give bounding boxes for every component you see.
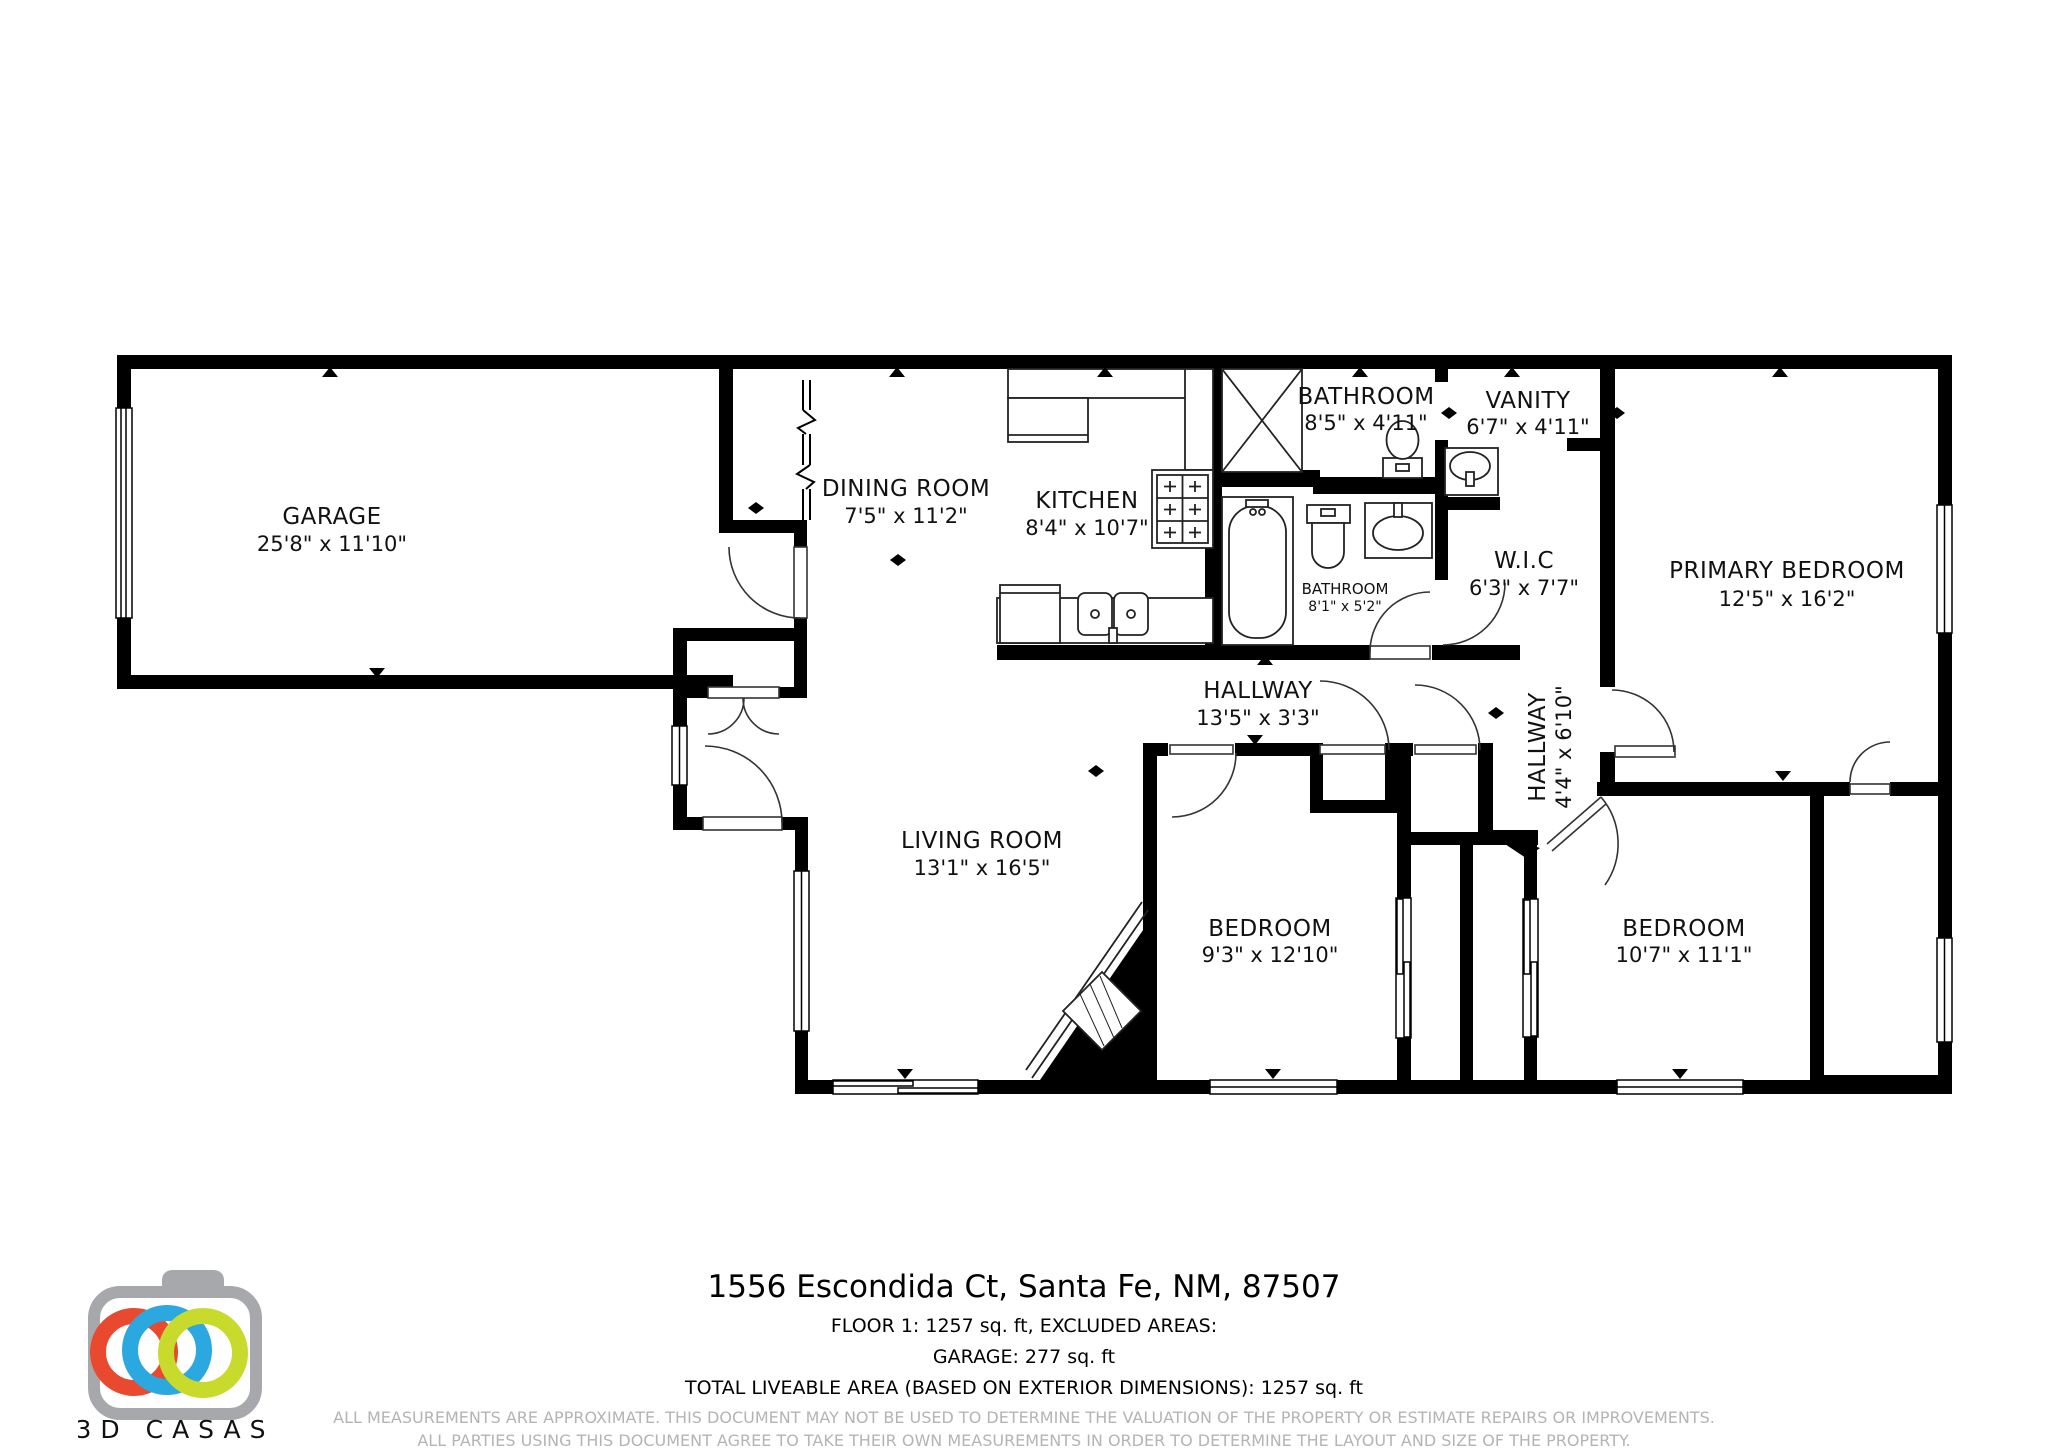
svg-text:6'3" x 7'7": 6'3" x 7'7" <box>1469 576 1579 600</box>
garage-entry-door <box>729 547 807 618</box>
label-wic: W.I.C 6'3" x 7'7" <box>1469 548 1579 600</box>
bath2-sink-symbol <box>1365 503 1432 558</box>
svg-text:HALLWAY: HALLWAY <box>1203 678 1313 704</box>
svg-text:8'1" x 5'2": 8'1" x 5'2" <box>1308 599 1381 615</box>
svg-text:DINING ROOM: DINING ROOM <box>822 476 990 502</box>
svg-text:4'4" x 6'10": 4'4" x 6'10" <box>1552 685 1576 808</box>
floorplan-drawing: GARAGE 25'8" x 11'10" DINING ROOM 7'5" x… <box>0 0 2048 1449</box>
garage-area-line: GARAGE: 277 sq. ft <box>0 1348 2048 1367</box>
svg-text:8'5" x 4'11": 8'5" x 4'11" <box>1304 411 1427 435</box>
bedroom1-window <box>1210 1080 1337 1094</box>
se-room-door <box>1850 742 1890 794</box>
svg-text:GARAGE: GARAGE <box>282 504 381 530</box>
svg-text:HALLWAY: HALLWAY <box>1525 692 1551 802</box>
svg-text:6'7" x 4'11": 6'7" x 4'11" <box>1466 415 1589 439</box>
floorplan-page: GARAGE 25'8" x 11'10" DINING ROOM 7'5" x… <box>0 0 2048 1449</box>
windows <box>116 408 1952 1094</box>
svg-text:BEDROOM: BEDROOM <box>1622 916 1746 942</box>
primary-window <box>1937 505 1952 633</box>
label-bathroom1: BATHROOM 8'5" x 4'11" <box>1297 384 1434 435</box>
svg-text:10'7" x 11'1": 10'7" x 11'1" <box>1616 943 1753 967</box>
living-west-window <box>794 871 809 1031</box>
svg-text:KITCHEN: KITCHEN <box>1035 488 1138 514</box>
svg-text:BATHROOM: BATHROOM <box>1297 384 1434 410</box>
svg-text:25'8" x 11'10": 25'8" x 11'10" <box>257 532 407 556</box>
closetA-sliding-door <box>1396 898 1411 1038</box>
svg-text:8'4" x 10'7": 8'4" x 10'7" <box>1025 516 1148 540</box>
disclaimer-line-1: ALL MEASUREMENTS ARE APPROXIMATE. THIS D… <box>0 1410 2048 1426</box>
floor-area-line: FLOOR 1: 1257 sq. ft, EXCLUDED AREAS: <box>0 1317 2048 1336</box>
shower-symbol <box>1222 369 1302 472</box>
bedroom2-window <box>1617 1080 1743 1094</box>
svg-text:12'5" x 16'2": 12'5" x 16'2" <box>1719 587 1856 611</box>
label-living: LIVING ROOM 13'1" x 16'5" <box>901 828 1063 880</box>
label-hallway1: HALLWAY 13'5" x 3'3" <box>1196 678 1319 730</box>
disclaimer-line-2: ALL PARTIES USING THIS DOCUMENT AGREE TO… <box>0 1433 2048 1449</box>
entry-closet-doors <box>708 687 779 734</box>
stove-symbol <box>1152 470 1213 548</box>
footer: 1556 Escondida Ct, Santa Fe, NM, 87507 F… <box>0 1272 2048 1449</box>
svg-text:LIVING ROOM: LIVING ROOM <box>901 828 1063 854</box>
label-bedroom1: BEDROOM 9'3" x 12'10" <box>1202 916 1339 967</box>
total-area-line: TOTAL LIVEABLE AREA (BASED ON EXTERIOR D… <box>0 1379 2048 1398</box>
svg-text:13'5" x 3'3": 13'5" x 3'3" <box>1196 706 1319 730</box>
svg-text:W.I.C: W.I.C <box>1494 548 1554 574</box>
label-dining: DINING ROOM 7'5" x 11'2" <box>822 476 990 528</box>
se-room-window <box>1937 938 1952 1042</box>
entry-window <box>672 726 687 785</box>
label-vanity: VANITY 6'7" x 4'11" <box>1466 388 1589 439</box>
bedroom2-diagonal-door <box>1547 797 1618 885</box>
svg-text:9'3" x 12'10": 9'3" x 12'10" <box>1202 943 1339 967</box>
bathtub-symbol <box>1222 497 1293 645</box>
label-bathroom2: BATHROOM 8'1" x 5'2" <box>1302 580 1389 615</box>
dining-open-wall <box>797 380 815 520</box>
living-patio-slider <box>833 1080 978 1094</box>
vanity-sink-symbol <box>1445 448 1498 495</box>
label-kitchen: KITCHEN 8'4" x 10'7" <box>1025 488 1148 540</box>
svg-text:13'1" x 16'5": 13'1" x 16'5" <box>914 856 1051 880</box>
front-door <box>703 746 782 830</box>
hall-closet2-door <box>1415 685 1480 754</box>
closetB-sliding-door <box>1523 899 1538 1037</box>
primary-bedroom-door <box>1612 690 1675 757</box>
svg-text:7'5" x 11'2": 7'5" x 11'2" <box>844 504 967 528</box>
toilet2-symbol <box>1307 505 1350 568</box>
svg-text:BEDROOM: BEDROOM <box>1208 916 1332 942</box>
svg-text:BATHROOM: BATHROOM <box>1302 580 1389 598</box>
walls <box>117 355 1952 1094</box>
label-hallway2: HALLWAY 4'4" x 6'10" <box>1525 685 1576 808</box>
svg-text:PRIMARY BEDROOM: PRIMARY BEDROOM <box>1669 558 1905 584</box>
label-garage: GARAGE 25'8" x 11'10" <box>257 504 407 556</box>
hall-closet1-door <box>1320 681 1389 754</box>
label-bedroom2: BEDROOM 10'7" x 11'1" <box>1616 916 1753 967</box>
label-primary: PRIMARY BEDROOM 12'5" x 16'2" <box>1669 558 1905 611</box>
bedroom1-door <box>1170 745 1236 817</box>
svg-text:VANITY: VANITY <box>1485 388 1571 414</box>
property-address: 1556 Escondida Ct, Santa Fe, NM, 87507 <box>0 1272 2048 1303</box>
garage-door <box>116 408 132 618</box>
